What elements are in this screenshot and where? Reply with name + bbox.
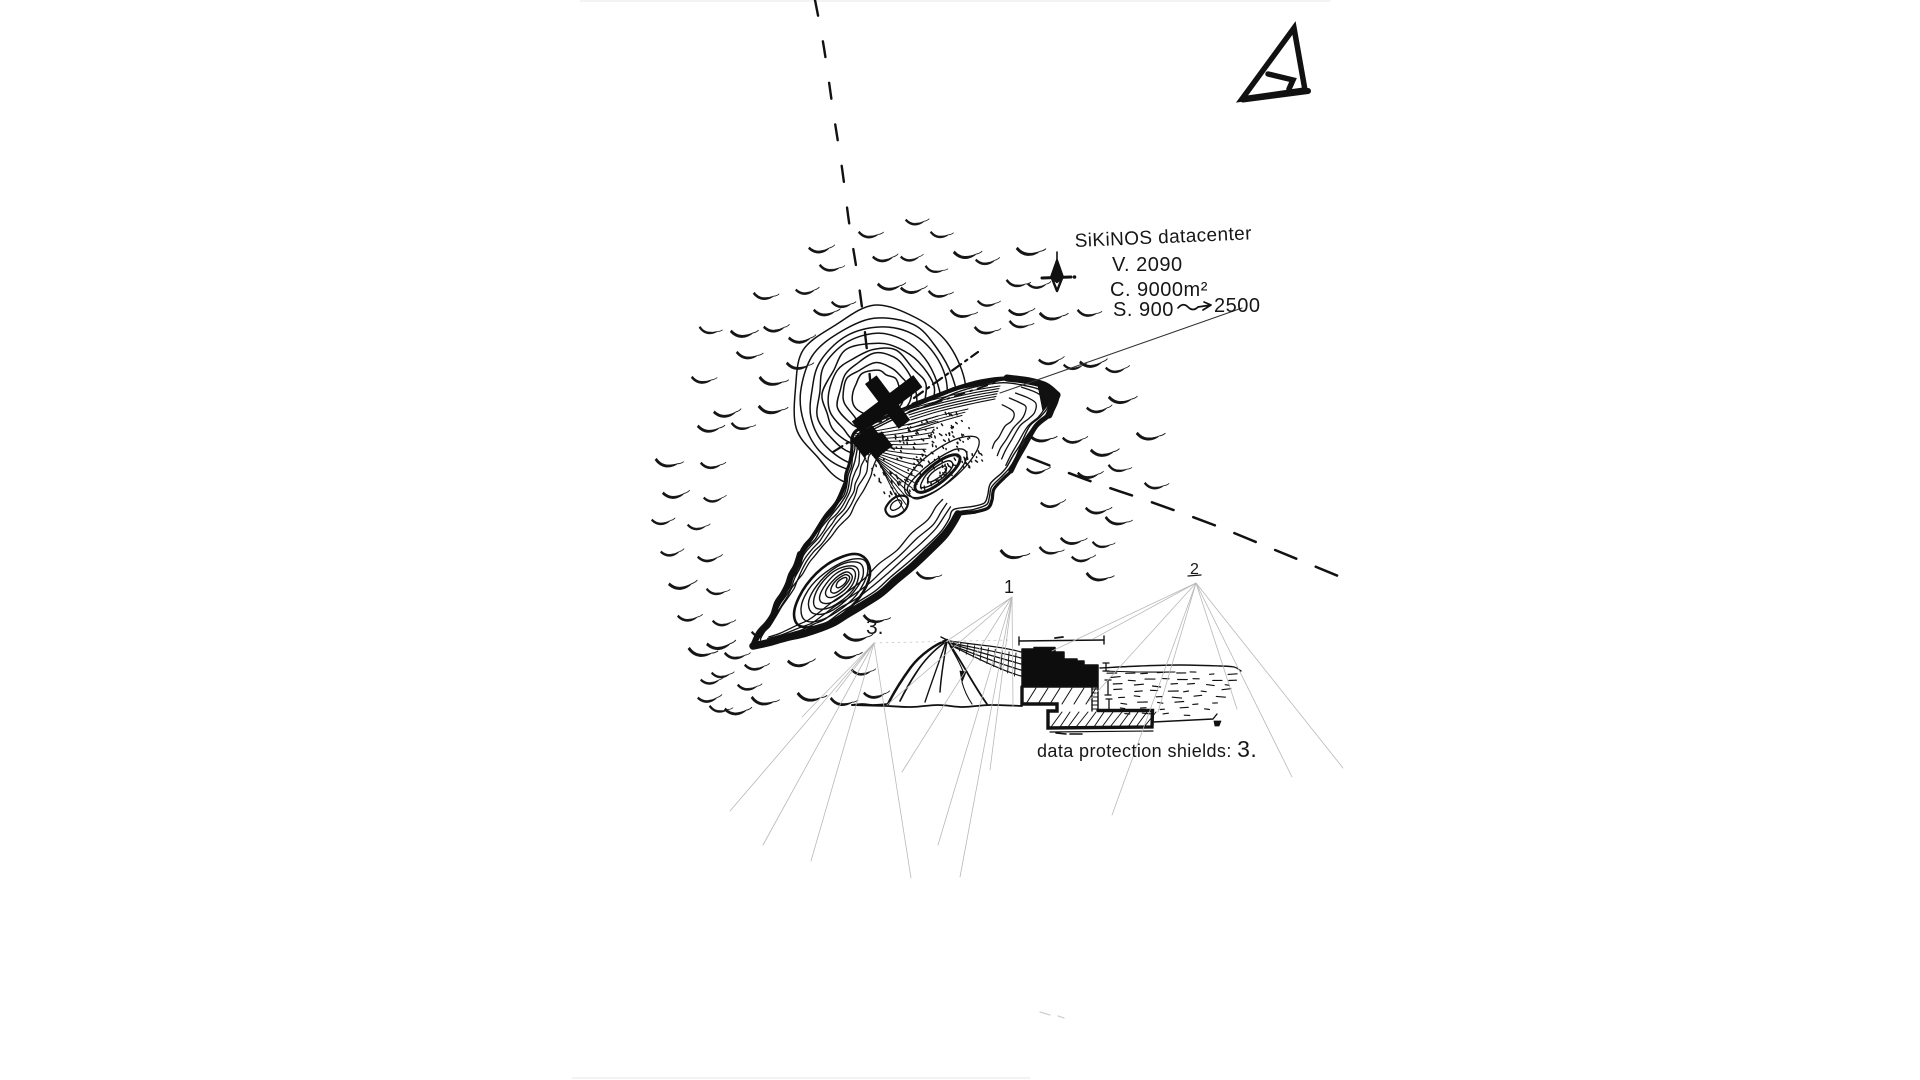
- svg-text:2500: 2500: [1214, 295, 1261, 317]
- svg-text:S. 900: S. 900: [1113, 299, 1174, 321]
- svg-text:C. 9000m²: C. 9000m²: [1110, 279, 1208, 301]
- svg-text:V. 2090: V. 2090: [1112, 254, 1183, 276]
- svg-text:3.: 3.: [866, 616, 884, 639]
- svg-text:1: 1: [1004, 577, 1014, 597]
